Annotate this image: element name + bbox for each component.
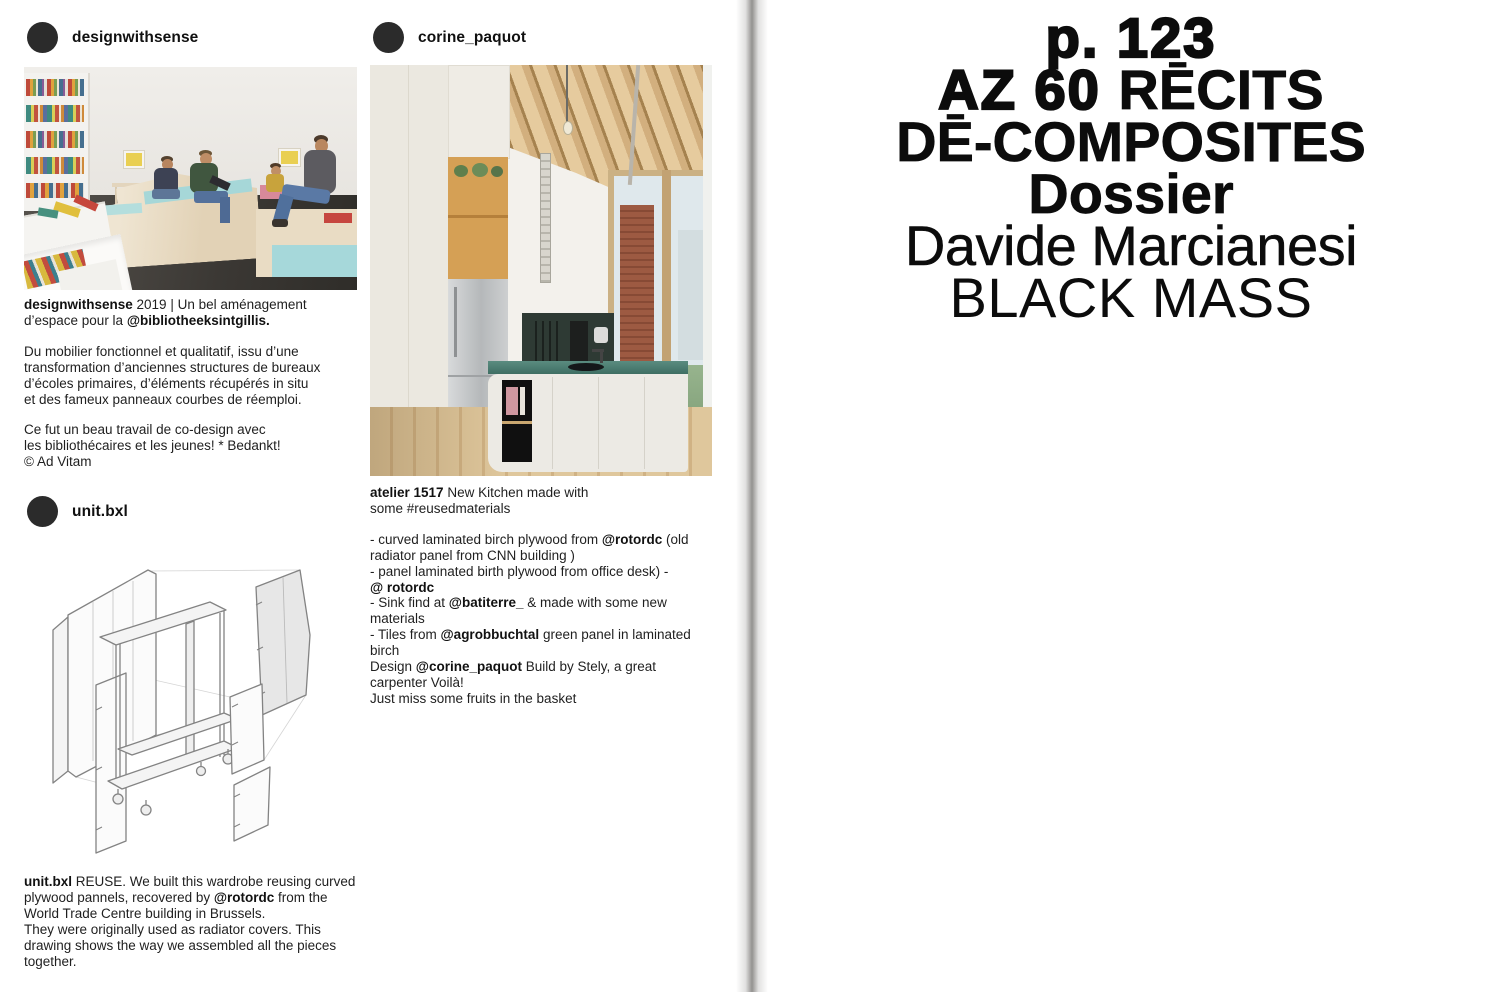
title-line-az60-recits: AZ 60 RĒCITS <box>762 64 1500 116</box>
wall-frame <box>279 149 300 166</box>
username-designwithsense: designwithsense <box>72 29 198 47</box>
slot-book <box>506 387 518 415</box>
username-unitbxl: unit.bxl <box>72 503 128 521</box>
caption-footer: Ce fut un beau travail de co-design avec… <box>24 422 360 470</box>
magazine-spread: { "colors": { "avatar": "#2b2b2b", "titl… <box>0 0 1500 1000</box>
caption-lead: designwithsense 2019 | Un bel aménagemen… <box>24 297 360 329</box>
plant <box>491 166 503 177</box>
cable <box>566 65 568 123</box>
island-seam <box>598 377 599 469</box>
island-seam <box>552 377 553 469</box>
avatar-icon <box>27 496 58 527</box>
photo-kitchen <box>370 65 712 476</box>
caption-lead: atelier 1517 New Kitchen made with some … <box>370 485 714 517</box>
cabinet-seam <box>408 65 409 407</box>
avatar-icon <box>373 22 404 53</box>
left-cabinets <box>370 65 449 407</box>
fridge-handle <box>454 287 457 357</box>
photo-library-seating <box>24 67 357 290</box>
book-row <box>26 105 84 122</box>
utensils <box>530 321 560 361</box>
post-header-corinepaquot: corine_paquot <box>373 22 526 53</box>
caption-unitbxl: unit.bxl REUSE. We built this wardrobe r… <box>24 874 368 969</box>
title-line-page-number: p. 123 <box>762 12 1500 64</box>
red-books <box>324 213 352 223</box>
tube-light <box>540 153 551 283</box>
light-bulb <box>563 121 573 135</box>
faucet-spout <box>592 349 604 352</box>
caption-corinepaquot: atelier 1517 New Kitchen made with some … <box>370 485 714 707</box>
book-row <box>26 131 84 148</box>
avatar-icon <box>27 22 58 53</box>
slot-shelf <box>502 421 532 424</box>
page-title: p. 123 AZ 60 RĒCITS DĒ-COMPOSITES Dossie… <box>762 12 1500 324</box>
title-line-dossier: Dossier <box>762 168 1500 220</box>
coffee-machine <box>570 321 588 361</box>
wall-frame <box>124 151 144 168</box>
title-line-black-mass: BLACK MASS <box>762 272 1500 324</box>
niche-shelf <box>448 215 508 218</box>
far-building <box>678 230 706 360</box>
caption-body: Du mobilier fonctionnel et qualitatif, i… <box>24 344 360 408</box>
plant <box>454 165 468 177</box>
title-line-de-composites: DĒ-COMPOSITES <box>762 116 1500 168</box>
post-header-unitbxl: unit.bxl <box>27 496 128 527</box>
person-shoes <box>272 219 288 227</box>
exploded-wardrobe-drawing <box>38 545 360 863</box>
person-legs <box>152 189 180 199</box>
post-header-designwithsense: designwithsense <box>27 22 198 53</box>
sink <box>568 363 604 371</box>
slot-book <box>520 387 525 415</box>
island-seam <box>644 377 645 469</box>
caption-lead: unit.bxl REUSE. We built this wardrobe r… <box>24 874 368 969</box>
caption-designwithsense: designwithsense 2019 | Un bel aménagemen… <box>24 297 360 470</box>
title-line-author: Davide Marcianesi <box>762 220 1500 272</box>
upper-cabinet <box>448 65 510 159</box>
seat-front-teal <box>272 245 357 277</box>
plant <box>472 163 488 177</box>
book-row <box>26 157 84 174</box>
book-row <box>26 79 84 96</box>
caption-body: - curved laminated birch plywood from @r… <box>370 532 714 707</box>
username-corinepaquot: corine_paquot <box>418 29 526 47</box>
person-leg <box>220 197 230 223</box>
kettle <box>594 327 608 343</box>
